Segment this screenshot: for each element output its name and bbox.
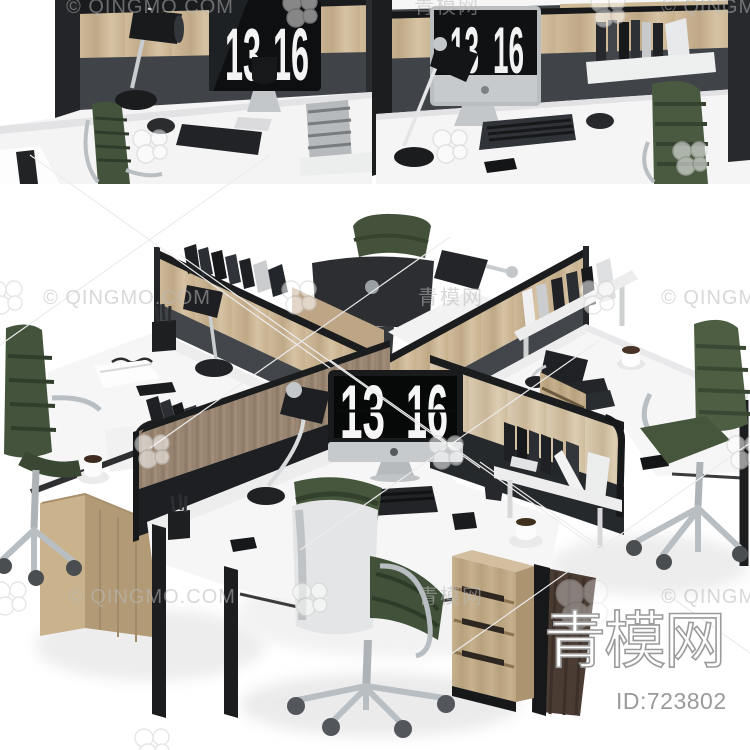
svg-text:青模网: 青模网 (418, 286, 484, 309)
svg-text:© QINGMO.COM: © QINGMO.COM (68, 586, 236, 608)
svg-text:青模网: 青模网 (418, 585, 484, 608)
svg-text:© QINGMO.COM: © QINGMO.COM (661, 586, 750, 608)
svg-text:青模网: 青模网 (544, 607, 724, 676)
svg-text:© QINGMO.COM: © QINGMO.COM (661, 287, 750, 309)
svg-text:青模网: 青模网 (414, 0, 480, 18)
svg-text:13: 13 (225, 13, 261, 96)
svg-text:ID:723802: ID:723802 (616, 688, 727, 714)
svg-text:© QINGMO.COM: © QINGMO.COM (43, 287, 211, 309)
svg-text:© QINGMO.COM: © QINGMO.COM (66, 0, 234, 18)
svg-text:© QINGMO.COM: © QINGMO.COM (661, 0, 750, 18)
